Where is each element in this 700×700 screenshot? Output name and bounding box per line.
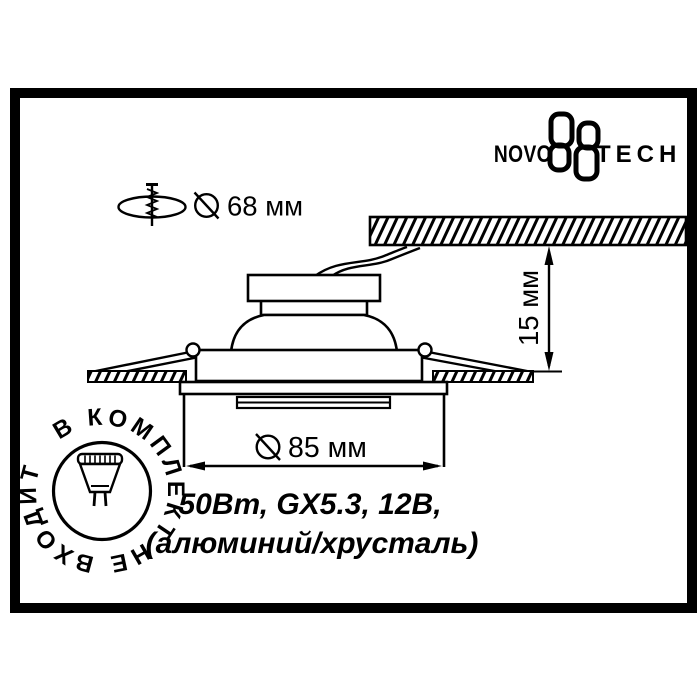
arrowhead-down <box>545 352 554 371</box>
trim-flange <box>180 382 447 394</box>
ceiling-section <box>370 217 686 245</box>
logo-text-novo: NOVO <box>494 140 552 168</box>
lamp-not-included-stamp: В КОМПЛЕКТ НЕ ВХОДИТ <box>15 404 189 579</box>
product-diagram-card: NOVO TECH 68 мм <box>0 0 700 700</box>
height-dimension: 15 мм <box>513 246 562 372</box>
lamp-wire <box>315 247 420 276</box>
height-label: 15 мм <box>513 270 544 346</box>
technical-drawing: NOVO TECH 68 мм <box>0 0 700 700</box>
arrowhead-up <box>545 246 554 265</box>
cutout-diameter-label: 68 мм <box>227 191 303 222</box>
spec-line-1: 50Вт, GX5.3, 12В, <box>178 488 441 521</box>
novotech-flower-icon <box>550 114 598 179</box>
spring-pivot-right <box>419 344 432 357</box>
screw-hole-icon <box>119 184 186 226</box>
housing-dome <box>231 315 397 352</box>
trim-ring <box>196 350 422 381</box>
housing-top <box>248 275 380 301</box>
ceiling-strip-left <box>88 371 186 382</box>
ceiling-strip-right <box>433 371 533 382</box>
spring-pivot-left <box>187 344 200 357</box>
cutout-annotation: 68 мм <box>119 184 304 226</box>
logo-text-tech: TECH <box>596 141 681 168</box>
diameter-icon <box>256 434 280 460</box>
novotech-logo: NOVO TECH <box>494 114 681 179</box>
arrowhead-right <box>423 462 442 471</box>
diameter-dimension: 85 мм <box>186 432 442 471</box>
diameter-label: 85 мм <box>288 432 367 464</box>
arrowhead-left <box>186 462 205 471</box>
diameter-icon <box>195 193 219 219</box>
fixture-section <box>88 217 686 467</box>
spec-line-2: (алюминий/хрусталь) <box>146 527 479 560</box>
